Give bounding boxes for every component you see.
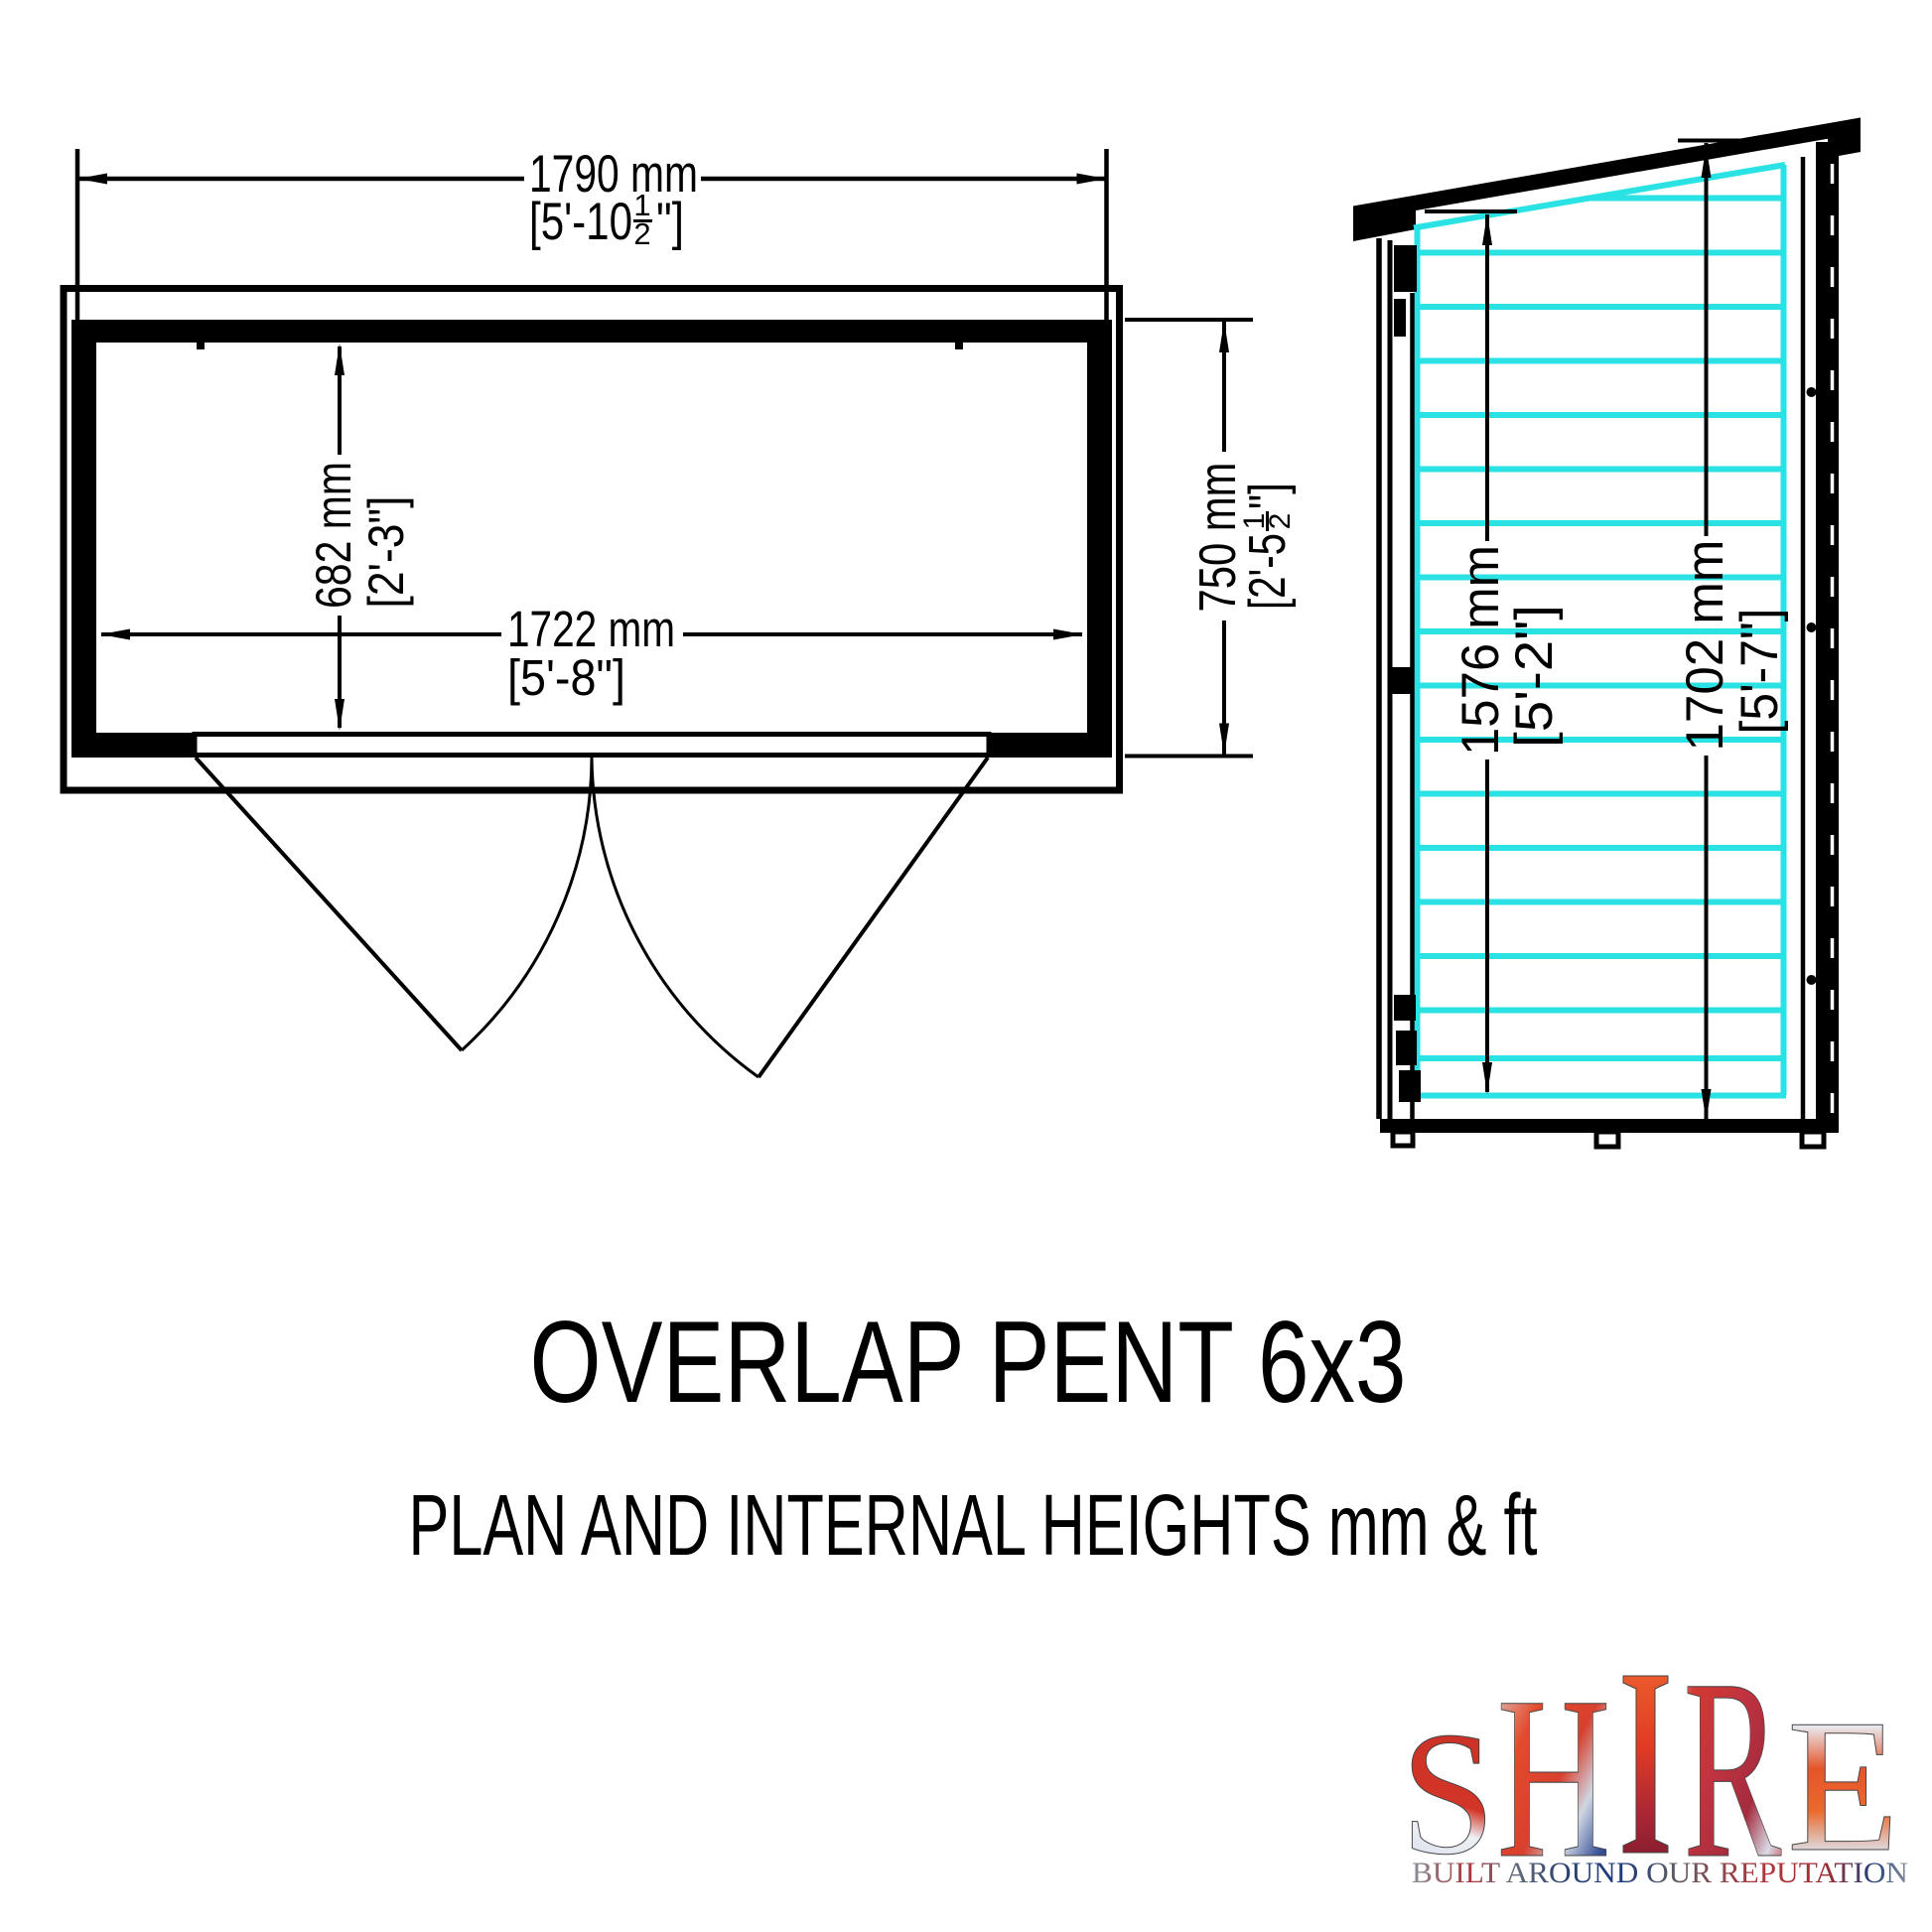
svg-text:[5'-10: [5'-10 — [529, 193, 632, 251]
svg-text:[5'-2"]: [5'-2"] — [1505, 605, 1564, 748]
svg-text:[5'-8"]: [5'-8"] — [507, 649, 625, 706]
svg-text:1576 mm: 1576 mm — [1451, 545, 1510, 756]
svg-text:1702 mm: 1702 mm — [1676, 540, 1734, 752]
svg-text:"]: "] — [1239, 483, 1297, 509]
svg-text:[2'-5: [2'-5 — [1239, 533, 1297, 610]
svg-text:[2'-3"]: [2'-3"] — [358, 496, 414, 609]
svg-text:BUILT AROUND OUR REPUTATION: BUILT AROUND OUR REPUTATION — [1412, 1857, 1908, 1889]
svg-text:PLAN AND INTERNAL HEIGHTS mm: PLAN AND INTERNAL HEIGHTS mm & ft — [409, 1477, 1538, 1574]
svg-text:682 mm: 682 mm — [306, 462, 361, 609]
svg-text:OVERLAP PENT 6x3: OVERLAP PENT 6x3 — [530, 1297, 1407, 1427]
svg-text:[5'-7"]: [5'-7"] — [1730, 609, 1789, 735]
svg-text:"]: "] — [656, 193, 684, 251]
